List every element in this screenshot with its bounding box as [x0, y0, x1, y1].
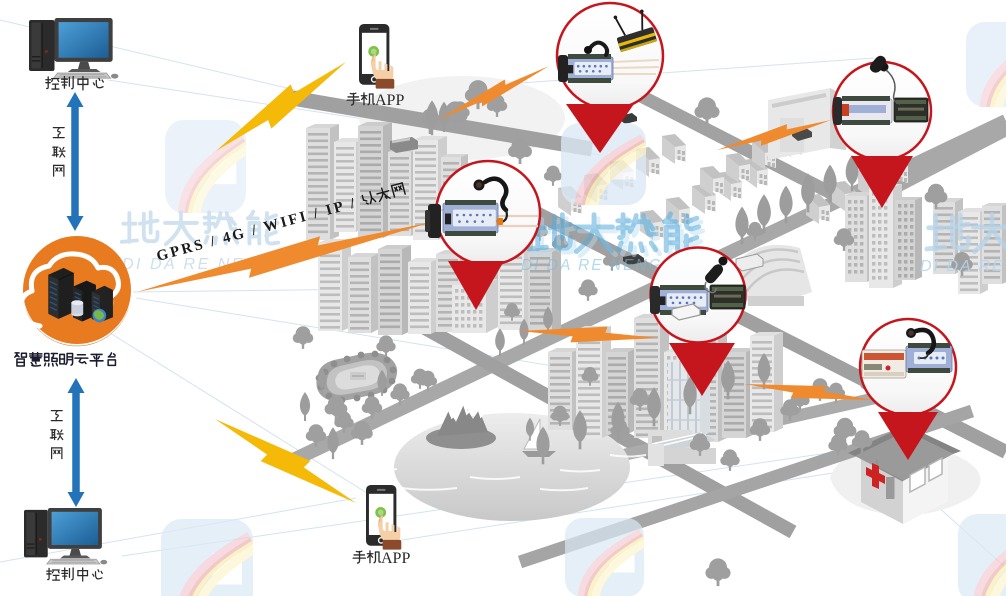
svg-text:DI DA RE NE: DI DA RE NE	[920, 258, 1006, 275]
svg-text:APP: APP	[381, 550, 410, 567]
svg-text:DI DA RE NENG: DI DA RE NENG	[521, 257, 663, 274]
svg-text:APP: APP	[375, 92, 404, 109]
